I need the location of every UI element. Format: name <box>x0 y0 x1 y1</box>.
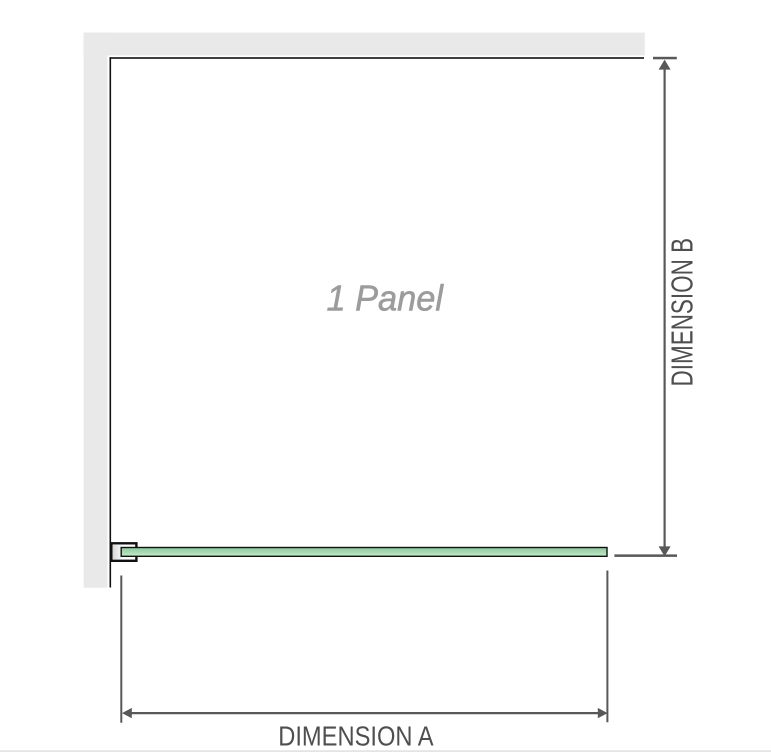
svg-text:1 Panel: 1 Panel <box>327 277 444 318</box>
svg-text:DIMENSION A: DIMENSION A <box>278 720 434 751</box>
svg-text:DIMENSION B: DIMENSION B <box>664 238 699 387</box>
